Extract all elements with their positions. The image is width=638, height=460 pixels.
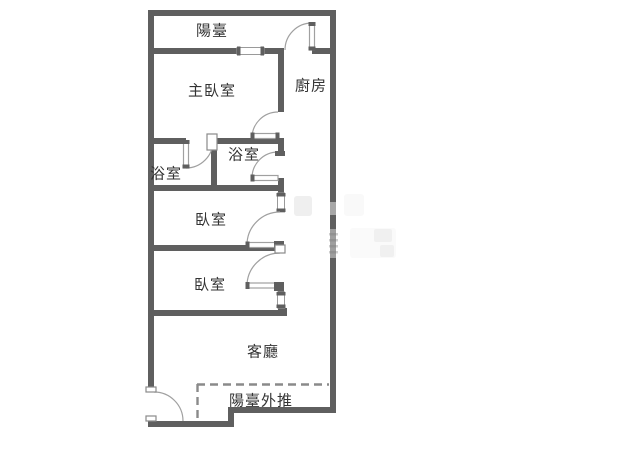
wall-living-top-corner bbox=[278, 308, 287, 316]
wall-corridor-a bbox=[278, 138, 284, 152]
room-label-master-bedroom: 主臥室 bbox=[188, 80, 236, 101]
watermark bbox=[294, 194, 396, 258]
room-label-bedroom-2: 臥室 bbox=[194, 274, 226, 295]
room-label-kitchen: 廚房 bbox=[295, 75, 327, 96]
wall-left bbox=[148, 10, 154, 392]
floorplan-drawing bbox=[0, 0, 638, 460]
floorplan-canvas: 陽臺 主臥室 廚房 浴室 浴室 臥室 臥室 客廳 陽臺外推 bbox=[0, 0, 638, 460]
wall-living-top bbox=[148, 310, 287, 316]
window-bedroom2 bbox=[277, 292, 286, 308]
room-label-living-room: 客廳 bbox=[247, 341, 279, 362]
wall-kitchen-left bbox=[278, 50, 284, 112]
wall-bath-bottom bbox=[148, 185, 284, 191]
door-entrance bbox=[146, 387, 183, 421]
door-bedroom1 bbox=[246, 212, 285, 249]
door-master-bedroom bbox=[251, 112, 280, 140]
wall-top bbox=[148, 10, 336, 16]
wall-master-bottom-a bbox=[148, 138, 186, 144]
door-bedroom2 bbox=[246, 245, 286, 291]
wall-corridor-b bbox=[278, 178, 284, 193]
room-label-balcony-top: 陽臺 bbox=[196, 20, 228, 41]
room-label-balcony-extension: 陽臺外推 bbox=[229, 390, 293, 411]
room-label-bedroom-1: 臥室 bbox=[195, 209, 227, 230]
window-bedroom1 bbox=[277, 193, 286, 212]
wall-balcony-a bbox=[154, 48, 237, 54]
room-label-bathroom-right: 浴室 bbox=[228, 144, 260, 165]
walls bbox=[148, 10, 336, 427]
wall-bottom-left bbox=[148, 421, 234, 427]
window-balcony bbox=[237, 47, 264, 56]
room-label-bathroom-left: 浴室 bbox=[150, 163, 182, 184]
door-kitchen bbox=[285, 22, 316, 51]
